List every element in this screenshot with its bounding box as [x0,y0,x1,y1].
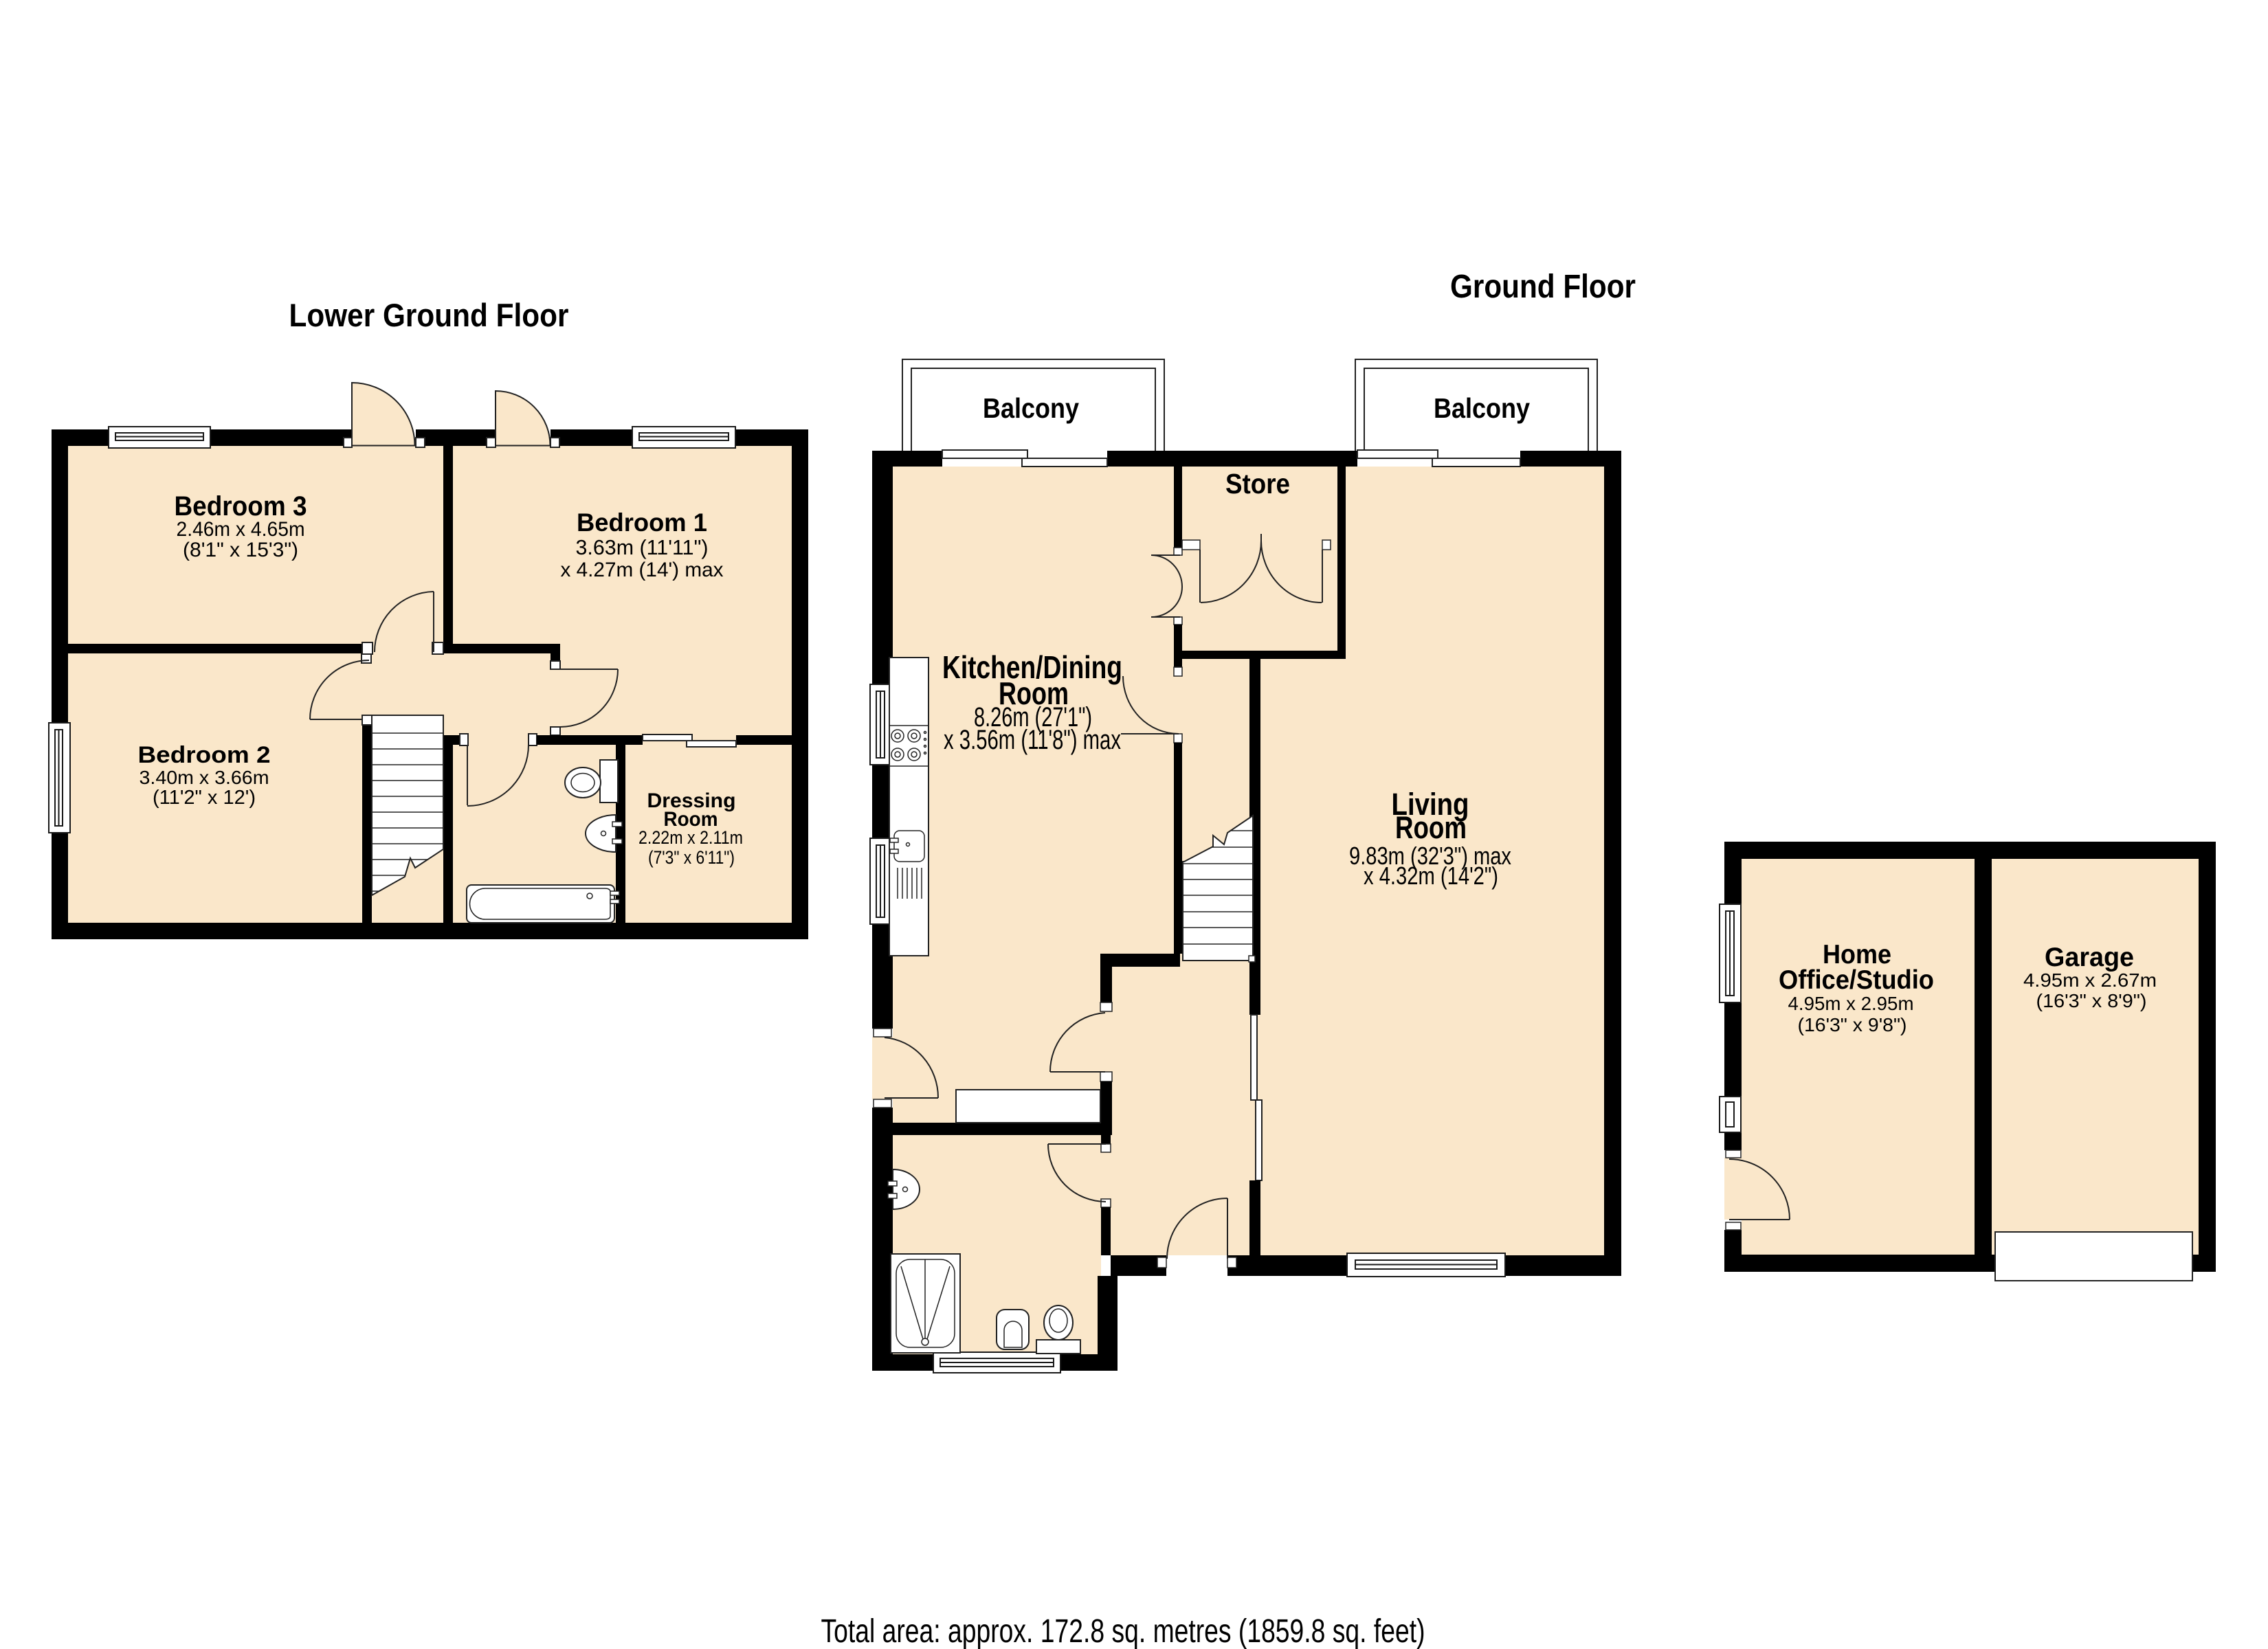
svg-text:Balcony: Balcony [1434,392,1530,424]
svg-text:x 3.56m (11'8") max: x 3.56m (11'8") max [944,725,1121,755]
svg-text:x 4.27m (14') max: x 4.27m (14') max [561,559,724,581]
svg-text:(7'3" x 6'11"): (7'3" x 6'11") [648,847,735,868]
svg-text:4.95m x 2.67m: 4.95m x 2.67m [2023,969,2157,991]
svg-text:Ground Floor: Ground Floor [1450,269,1636,305]
svg-text:4.95m x 2.95m: 4.95m x 2.95m [1788,993,1914,1014]
svg-text:Balcony: Balcony [983,392,1079,424]
svg-text:2.22m x 2.11m: 2.22m x 2.11m [638,827,743,848]
svg-text:Bedroom 1: Bedroom 1 [577,508,707,537]
svg-text:Garage: Garage [2045,943,2134,972]
svg-text:Room: Room [1395,810,1467,845]
svg-text:Bedroom 2: Bedroom 2 [138,742,271,768]
svg-text:Bedroom 3: Bedroom 3 [175,491,307,521]
svg-text:Store: Store [1225,468,1290,500]
svg-text:(11'2" x 12'): (11'2" x 12') [153,787,256,809]
svg-text:Office/Studio: Office/Studio [1779,965,1934,995]
svg-text:(16'3" x 8'9"): (16'3" x 8'9") [2036,990,2147,1011]
svg-text:(8'1" x 15'3"): (8'1" x 15'3") [183,539,298,561]
svg-text:3.63m (11'11"): 3.63m (11'11") [576,535,709,559]
svg-text:2.46m x 4.65m: 2.46m x 4.65m [177,518,305,541]
svg-text:(16'3" x 9'8"): (16'3" x 9'8") [1798,1014,1907,1035]
svg-text:Total area: approx. 172.8 sq.: Total area: approx. 172.8 sq. metres (18… [821,1613,1425,1649]
svg-text:3.40m x 3.66m: 3.40m x 3.66m [140,767,269,788]
svg-text:x 4.32m (14'2"): x 4.32m (14'2") [1364,862,1498,890]
svg-text:Lower Ground Floor: Lower Ground Floor [289,297,569,333]
